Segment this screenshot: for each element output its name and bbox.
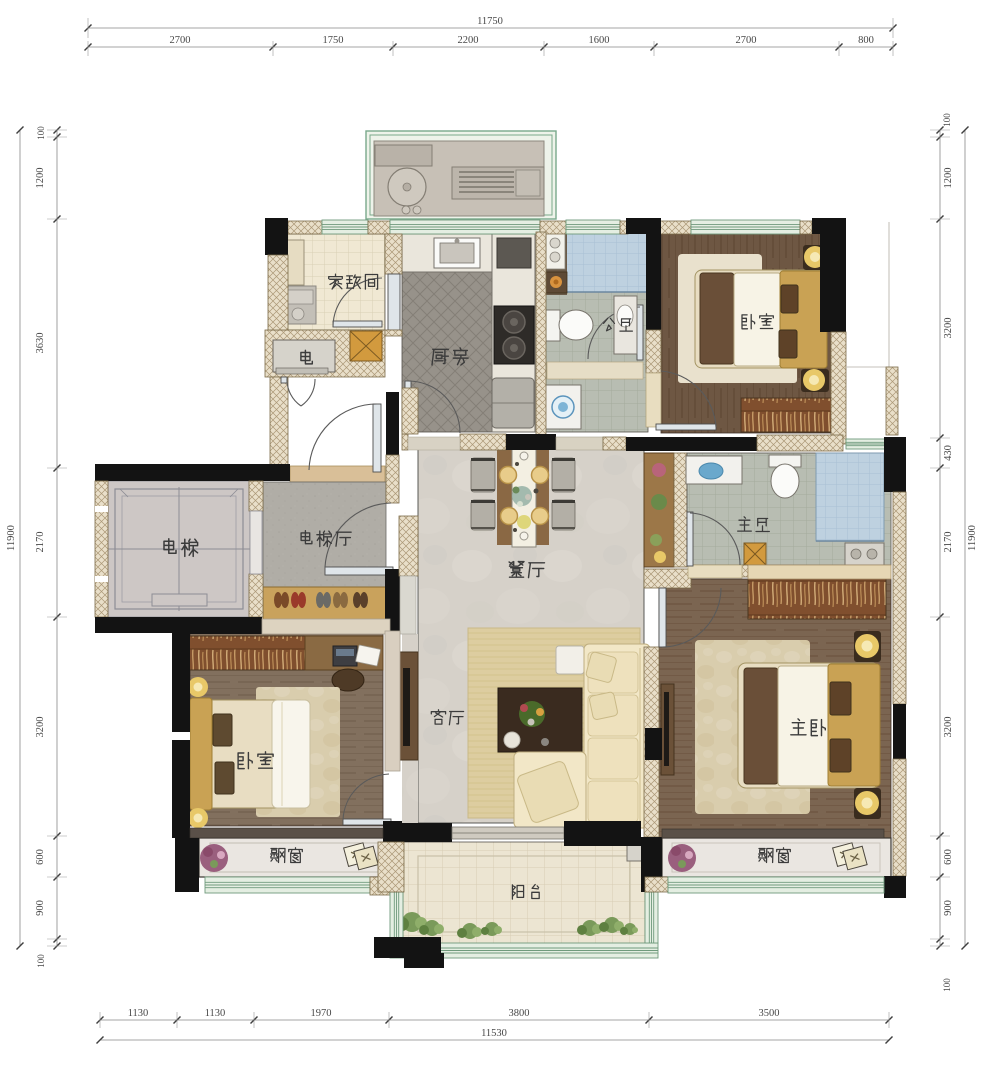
svg-text:2700: 2700 xyxy=(170,35,191,46)
svg-text:600: 600 xyxy=(35,849,46,865)
svg-text:430: 430 xyxy=(943,445,954,461)
svg-text:3500: 3500 xyxy=(759,1008,780,1019)
svg-text:3200: 3200 xyxy=(943,717,954,738)
svg-text:1750: 1750 xyxy=(323,35,344,46)
svg-text:1130: 1130 xyxy=(128,1008,149,1019)
svg-text:2170: 2170 xyxy=(943,532,954,553)
svg-text:900: 900 xyxy=(943,900,954,916)
svg-text:100: 100 xyxy=(36,126,46,140)
svg-text:3200: 3200 xyxy=(943,318,954,339)
svg-text:11900: 11900 xyxy=(967,525,978,551)
svg-text:1200: 1200 xyxy=(943,168,954,189)
svg-text:100: 100 xyxy=(36,954,46,968)
svg-text:1200: 1200 xyxy=(35,168,46,189)
svg-text:800: 800 xyxy=(858,35,874,46)
svg-text:3630: 3630 xyxy=(35,333,46,354)
svg-text:900: 900 xyxy=(35,900,46,916)
svg-text:600: 600 xyxy=(943,849,954,865)
svg-text:11750: 11750 xyxy=(477,16,503,27)
svg-text:2170: 2170 xyxy=(35,532,46,553)
svg-text:2200: 2200 xyxy=(458,35,479,46)
svg-text:11530: 11530 xyxy=(481,1028,507,1039)
svg-text:2700: 2700 xyxy=(736,35,757,46)
svg-text:3200: 3200 xyxy=(35,717,46,738)
svg-text:100: 100 xyxy=(942,113,952,127)
svg-text:1600: 1600 xyxy=(589,35,610,46)
svg-text:1970: 1970 xyxy=(311,1008,332,1019)
svg-text:100: 100 xyxy=(942,978,952,992)
svg-text:1130: 1130 xyxy=(205,1008,226,1019)
svg-text:11900: 11900 xyxy=(6,525,17,551)
svg-text:3800: 3800 xyxy=(509,1008,530,1019)
